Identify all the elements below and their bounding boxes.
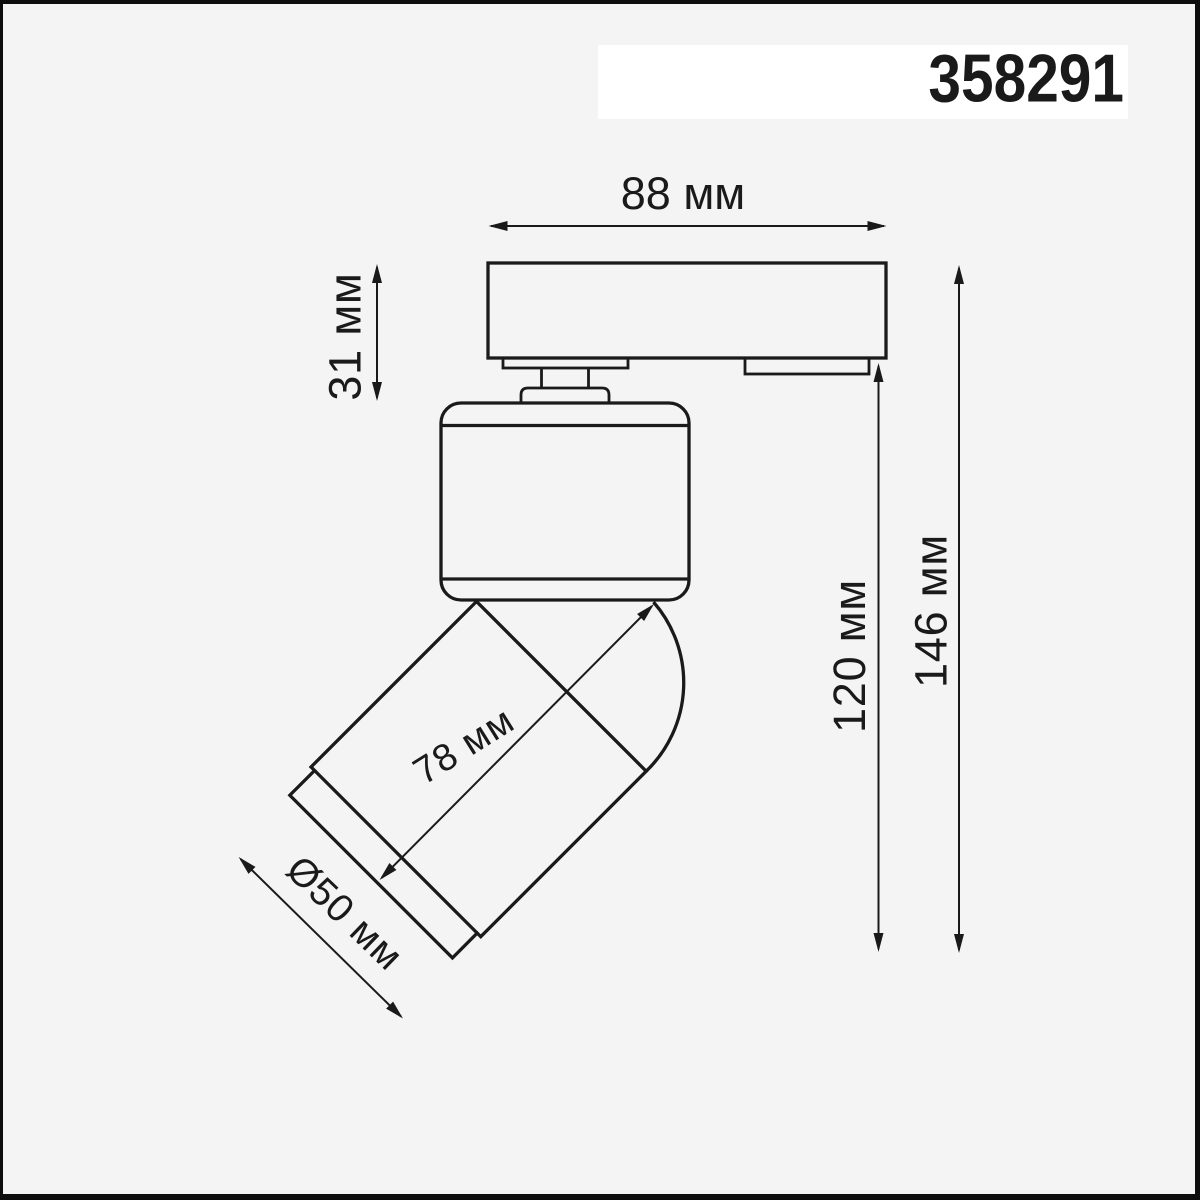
svg-text:120 мм: 120 мм bbox=[824, 579, 875, 733]
svg-text:358291: 358291 bbox=[928, 42, 1124, 117]
svg-text:146 мм: 146 мм bbox=[906, 534, 957, 688]
svg-text:31 мм: 31 мм bbox=[320, 272, 371, 400]
svg-text:88 мм: 88 мм bbox=[621, 168, 745, 219]
